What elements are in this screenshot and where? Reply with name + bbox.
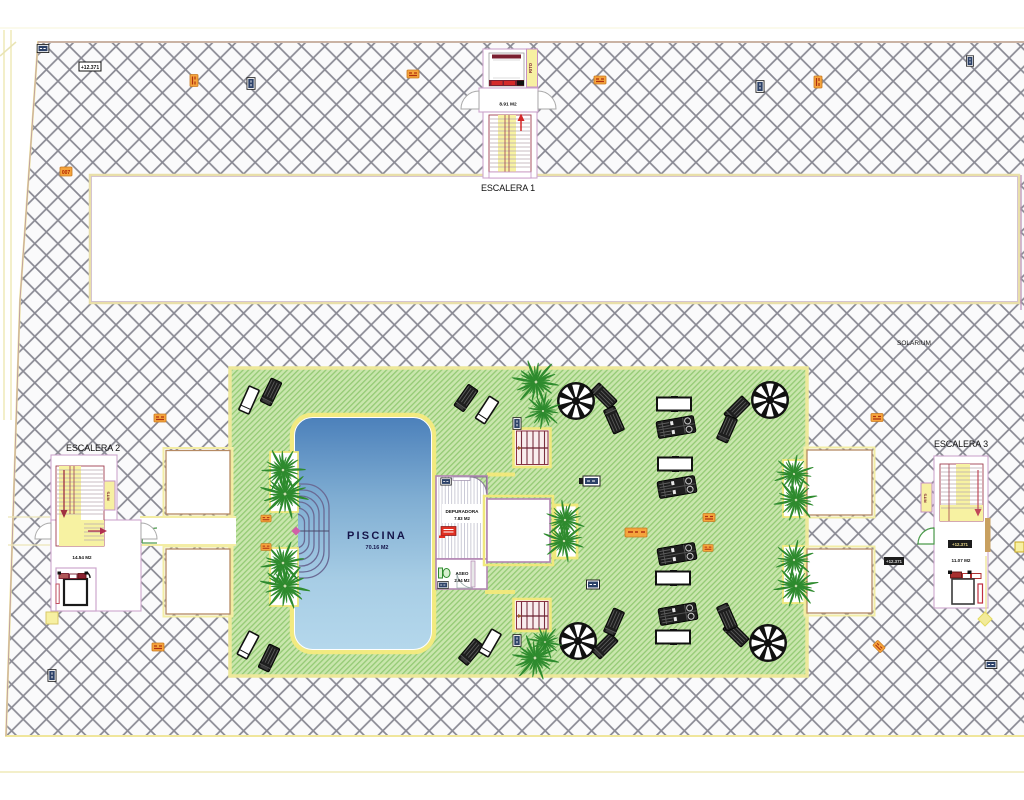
svg-text:DEPURADORA: DEPURADORA [446,509,480,514]
svg-text:007: 007 [62,170,71,176]
svg-text:RITS: RITS [106,491,111,500]
svg-text:2.94 M2: 2.94 M2 [454,578,470,583]
svg-text:ASEO: ASEO [455,571,468,576]
svg-text:ESCALERA 1: ESCALERA 1 [481,183,535,193]
svg-text:11.07 M2: 11.07 M2 [952,558,971,563]
svg-text:8.91 M2: 8.91 M2 [499,102,517,108]
svg-text:7.83 M2: 7.83 M2 [454,516,470,521]
svg-text:ESCALERA 3: ESCALERA 3 [934,439,988,449]
svg-text:RITS: RITS [923,493,928,502]
svg-text:14.54 M2: 14.54 M2 [72,555,92,560]
svg-text:ESCALERA 2: ESCALERA 2 [66,443,120,453]
svg-text:+12.371: +12.371 [886,559,903,564]
svg-text:RITO: RITO [528,62,533,73]
svg-text:70.16 M2: 70.16 M2 [366,545,389,551]
svg-text:PISCINA: PISCINA [347,530,407,542]
svg-text:+12.371: +12.371 [81,65,99,71]
svg-text:SOLARIUM: SOLARIUM [897,340,931,347]
svg-text:+12.371: +12.371 [952,542,969,547]
